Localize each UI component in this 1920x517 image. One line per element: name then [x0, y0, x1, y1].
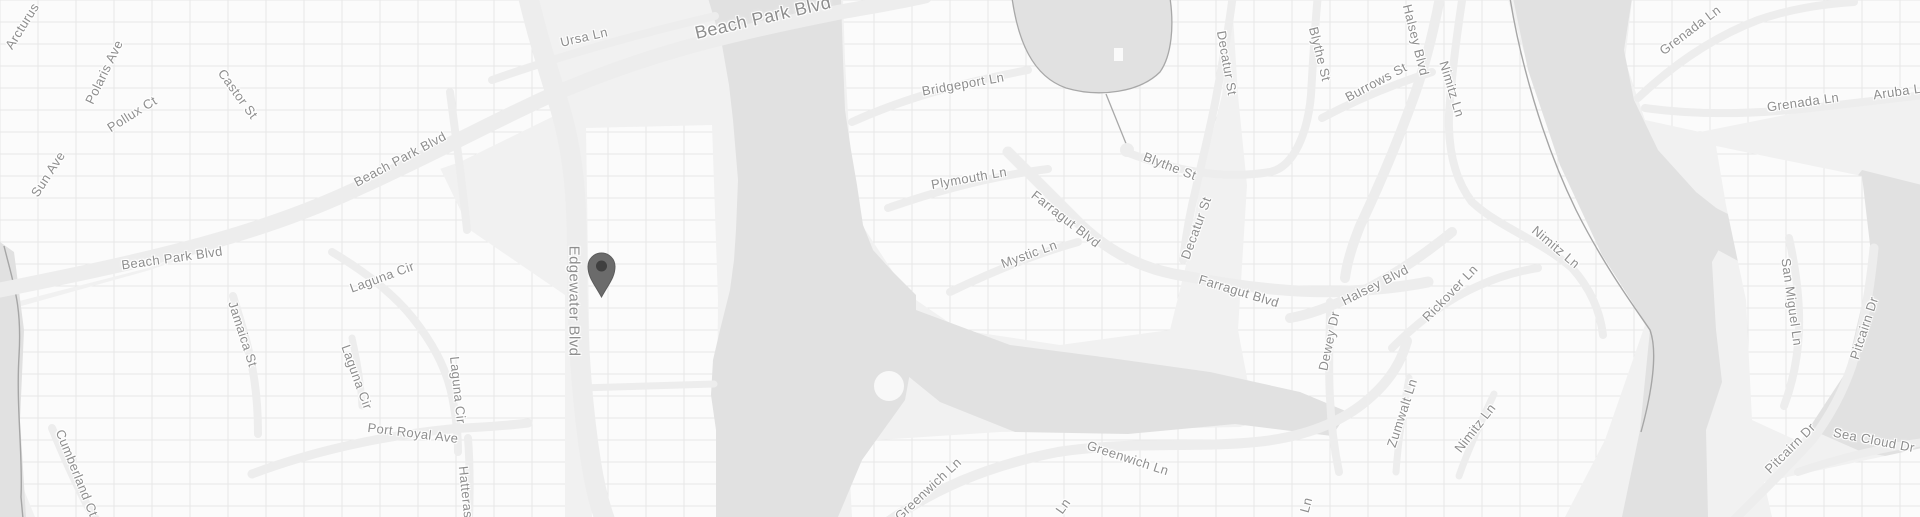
road-complex-drive	[580, 384, 714, 388]
pond-dock	[1114, 48, 1123, 61]
cul-de-sac	[874, 371, 904, 401]
basemap-graphics	[0, 0, 1920, 517]
map-canvas[interactable]: ArcturusPolaris AvePollux CtCastor StSun…	[0, 0, 1920, 517]
road-hatteras	[468, 438, 470, 517]
pin-dot-icon	[596, 261, 607, 272]
